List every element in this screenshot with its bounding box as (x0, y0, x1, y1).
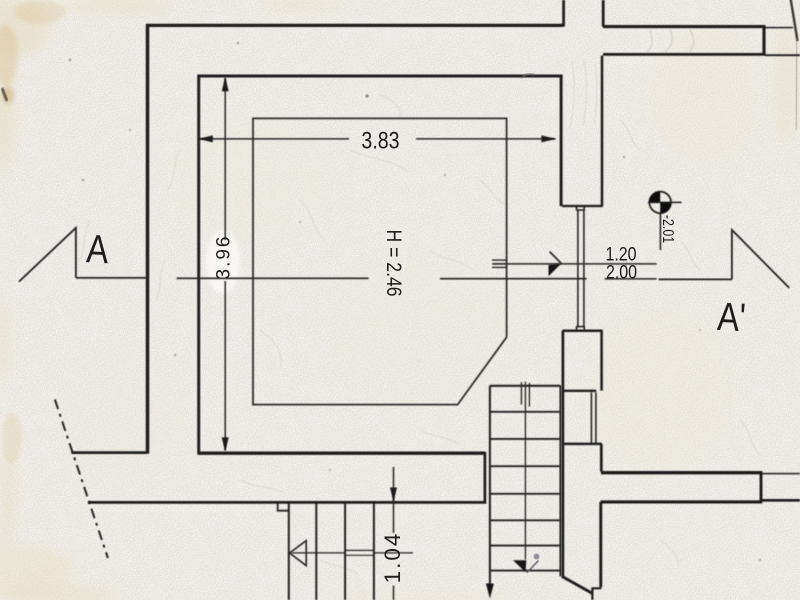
svg-text:H = 2.46: H = 2.46 (381, 229, 405, 296)
svg-text:2.00: 2.00 (606, 261, 637, 283)
svg-text:A: A (85, 226, 110, 272)
svg-text:-2.01: -2.01 (659, 215, 677, 243)
svg-text:3.83: 3.83 (361, 126, 399, 154)
svg-text:1.04: 1.04 (380, 532, 405, 584)
svg-text:3.96: 3.96 (214, 235, 235, 280)
svg-text:A': A' (716, 294, 746, 340)
